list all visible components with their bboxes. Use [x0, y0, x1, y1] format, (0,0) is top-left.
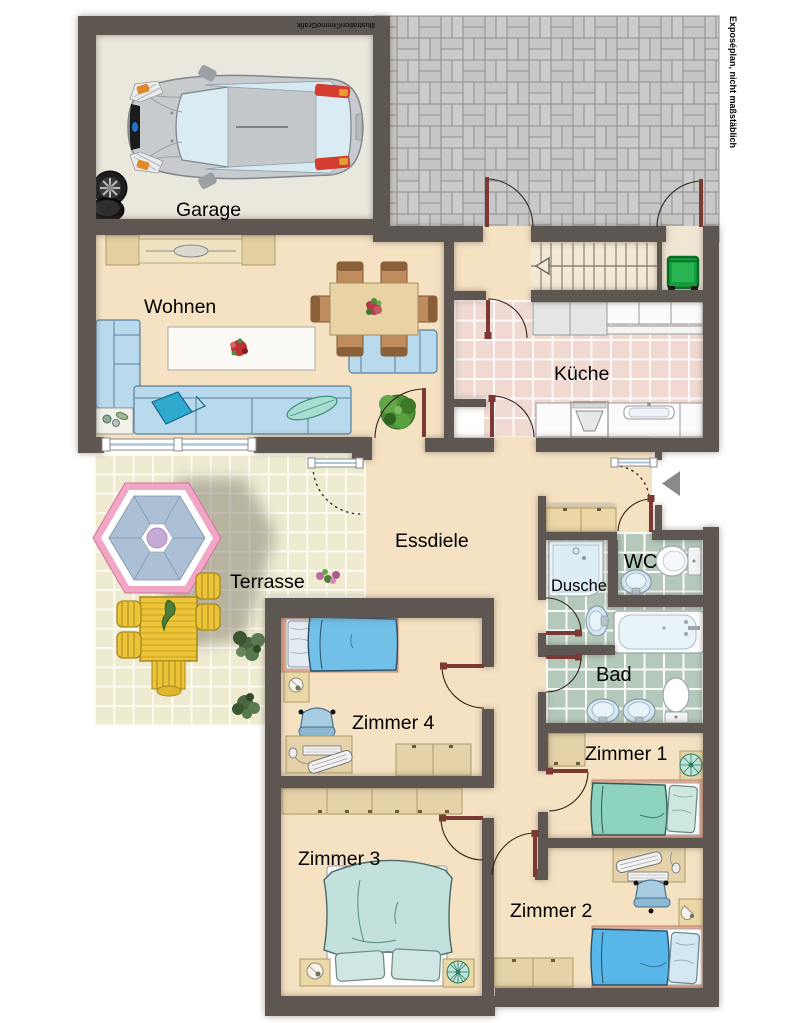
svg-text:Zimmer 2: Zimmer 2	[510, 900, 592, 922]
svg-text:Terrasse: Terrasse	[230, 571, 305, 593]
svg-text:Bad: Bad	[596, 664, 632, 686]
svg-text:Küche: Küche	[554, 363, 609, 385]
svg-text:Dusche: Dusche	[551, 577, 607, 595]
svg-text:Essdiele: Essdiele	[395, 530, 469, 552]
svg-text:Exposéplan, nicht maßstäblich: Exposéplan, nicht maßstäblich	[728, 16, 738, 148]
svg-text:Zimmer 1: Zimmer 1	[585, 743, 667, 765]
svg-text:Zimmer 3: Zimmer 3	[298, 848, 380, 870]
svg-text:Wohnen: Wohnen	[144, 296, 216, 318]
svg-text:Zimmer 4: Zimmer 4	[352, 712, 434, 734]
svg-text:Illustration©immoGrafik: Illustration©immoGrafik	[297, 21, 375, 30]
svg-text:WC: WC	[624, 551, 657, 573]
svg-text:Garage: Garage	[176, 199, 241, 221]
